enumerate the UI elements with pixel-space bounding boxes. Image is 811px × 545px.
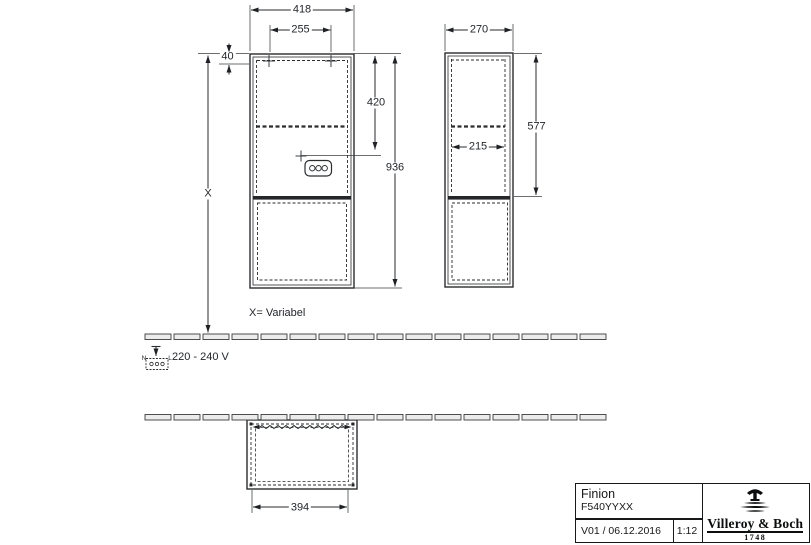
fountain-icon bbox=[731, 487, 779, 517]
drawing-canvas: N L bbox=[0, 0, 811, 545]
product-name: Finion bbox=[581, 487, 615, 501]
wall-line-plan bbox=[145, 415, 606, 421]
dim-front-width: 418 bbox=[291, 5, 313, 16]
drawing-scale: 1:12 bbox=[673, 525, 702, 537]
front-view bbox=[250, 54, 354, 288]
title-block: Finion F540YYXX V01 / 06.12.2016 1:12 Vi… bbox=[575, 483, 810, 543]
dim-side-inner-depth: 215 bbox=[467, 142, 489, 153]
dim-side-depth: 270 bbox=[468, 25, 490, 36]
power-connection-symbol: N L bbox=[142, 347, 173, 370]
dim-bottom-inner-width: 394 bbox=[289, 502, 311, 513]
version-date: V01 / 06.12.2016 bbox=[581, 525, 661, 537]
dim-height-variable: X bbox=[202, 189, 213, 200]
dim-hole-spacing: 255 bbox=[289, 25, 311, 36]
brand-logo: Villeroy & Boch 1748 bbox=[702, 484, 810, 542]
brand-year: 1748 bbox=[702, 534, 810, 542]
article-number: F540YYXX bbox=[581, 501, 633, 513]
dim-outlet-from-top: 420 bbox=[365, 98, 387, 109]
side-view bbox=[445, 53, 513, 287]
floor-line-front bbox=[145, 334, 606, 340]
brand-name: Villeroy & Boch bbox=[707, 517, 803, 533]
dim-side-open-height: 577 bbox=[525, 121, 547, 132]
variable-height-note: X= Variabel bbox=[249, 308, 305, 319]
top-view bbox=[247, 420, 357, 489]
voltage-note: 220 - 240 V bbox=[172, 352, 229, 363]
technical-drawing: N L 418 255 270 40 X 420 936 577 215 394… bbox=[0, 0, 811, 545]
neutral-label: N bbox=[142, 355, 147, 362]
dim-hole-offset: 40 bbox=[219, 51, 235, 62]
title-block-divider-horizontal bbox=[576, 518, 702, 520]
dim-total-height: 936 bbox=[384, 163, 406, 174]
